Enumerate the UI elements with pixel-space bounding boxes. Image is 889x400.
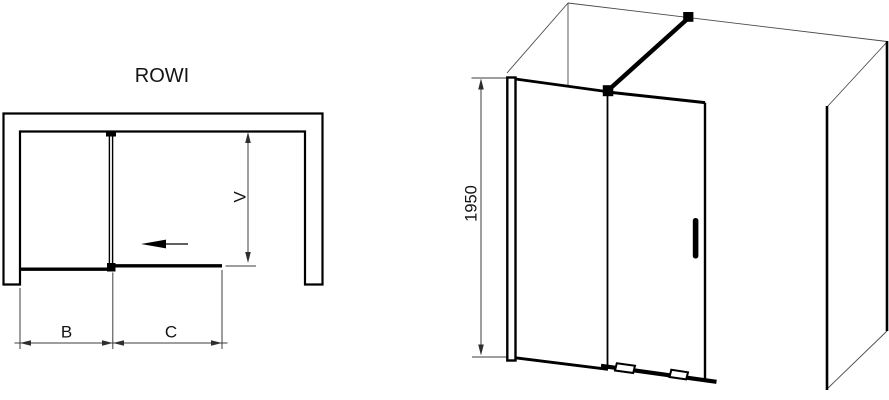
wall-clamp xyxy=(106,131,116,137)
wall-profile xyxy=(507,78,515,361)
dimension-c-label: C xyxy=(165,323,177,342)
sliding-door xyxy=(601,92,717,382)
arrowhead-down-icon xyxy=(478,345,484,356)
bar-bracket-lower xyxy=(603,85,614,96)
roller-bracket xyxy=(670,370,689,380)
slide-direction-arrow-icon xyxy=(141,240,188,249)
arrowhead-left-icon xyxy=(113,340,124,346)
dimension-b: B xyxy=(15,273,119,350)
arrowhead-left-icon xyxy=(20,340,31,346)
dimension-v-label: V xyxy=(231,191,250,203)
fixed-glass-panel xyxy=(515,79,608,369)
plan-view: ROWI B xyxy=(4,65,323,349)
side-wall-panel xyxy=(827,41,887,390)
fixed-panel-plan xyxy=(20,131,116,272)
drawing-canvas: ROWI B xyxy=(0,0,889,400)
dimension-c: C xyxy=(108,270,228,349)
arrowhead-up-icon xyxy=(478,79,484,90)
dimension-v: V xyxy=(226,132,257,266)
dimension-height-label: 1950 xyxy=(463,185,481,222)
left-wall-top-edge xyxy=(507,3,568,73)
technical-drawing: ROWI B xyxy=(0,0,889,400)
plan-view-title: ROWI xyxy=(135,65,189,87)
roller-bracket xyxy=(615,363,635,373)
arrowhead-right-icon xyxy=(211,340,222,346)
door-handle xyxy=(693,218,699,259)
wall-section xyxy=(4,114,323,285)
support-bar xyxy=(603,12,694,96)
ceiling-edge xyxy=(568,3,887,42)
dimension-height: 1950 xyxy=(463,78,514,357)
dimension-b-label: B xyxy=(61,323,72,342)
arrowhead-down-icon xyxy=(245,252,251,263)
arrowhead-up-icon xyxy=(245,132,251,143)
isometric-view: 1950 xyxy=(463,3,888,390)
room-outline xyxy=(507,3,887,85)
bar-bracket-upper xyxy=(683,12,693,22)
